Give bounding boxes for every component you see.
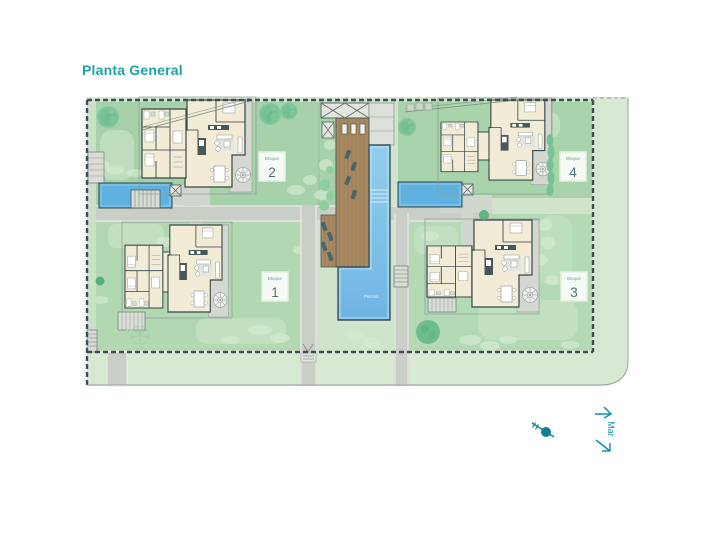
svg-text:Planta General: Planta General — [82, 62, 183, 78]
svg-text:Bloque: Bloque — [567, 276, 582, 281]
svg-text:Mar: Mar — [606, 421, 616, 437]
svg-text:Bloque: Bloque — [265, 156, 280, 161]
svg-text:2: 2 — [268, 165, 276, 180]
svg-text:Bloque: Bloque — [566, 156, 581, 161]
svg-text:3: 3 — [570, 285, 578, 300]
svg-text:Piscina: Piscina — [364, 294, 379, 299]
svg-text:1: 1 — [271, 285, 279, 300]
svg-text:4: 4 — [569, 165, 577, 180]
svg-text:Bloque: Bloque — [268, 276, 283, 281]
